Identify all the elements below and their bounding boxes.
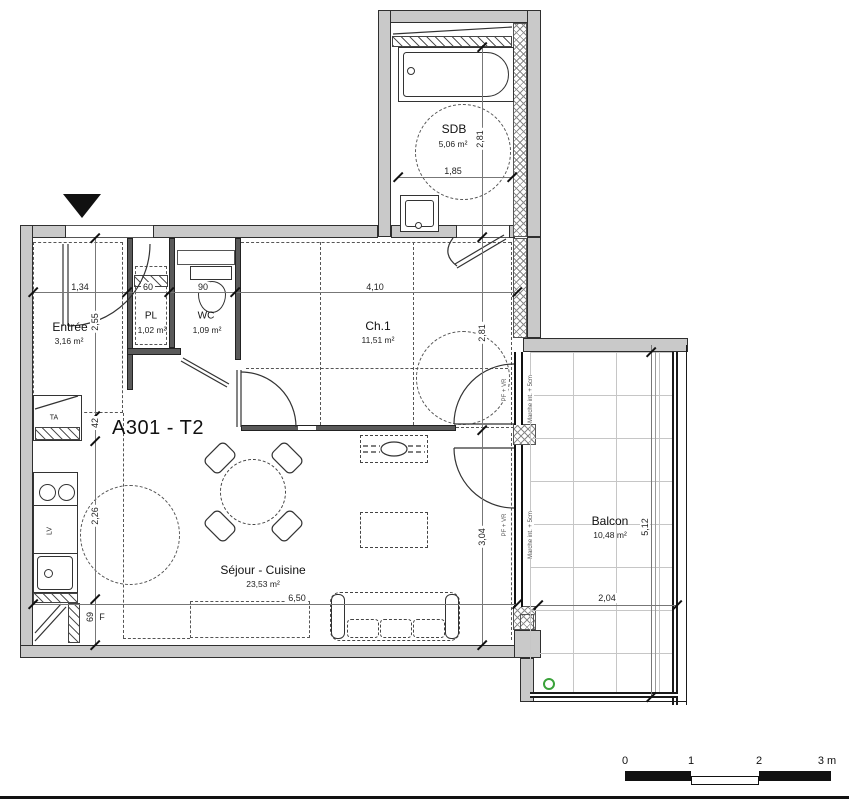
scale-segment-2 (691, 776, 759, 785)
wall-sdb-top (378, 10, 541, 23)
room-area-ch1: 11,51 m² (362, 335, 395, 345)
bathtub-inner (403, 52, 509, 97)
fridge-letter: F (97, 612, 107, 622)
cooktop-burner-left (39, 484, 56, 501)
ch1-door-arc (241, 372, 296, 427)
window-note-sejour: PF + VR (502, 514, 508, 537)
kitchen-zone-dashed-h (123, 638, 190, 639)
dim-entree-width: 1,34 (69, 282, 91, 292)
wall-gap (298, 426, 316, 430)
sheet-bottom-edge (0, 796, 849, 799)
dimension-line-h-top (33, 292, 517, 293)
dim-ch1-depth: 2,81 (477, 322, 487, 344)
room-label-sejour: Séjour - Cuisine (220, 563, 305, 577)
room-label-pl: PL (145, 311, 157, 322)
dim-sdb-width: 1,85 (442, 166, 464, 176)
dim-ch1-width: 4,10 (364, 282, 386, 292)
ch1-dashed-window (511, 242, 512, 425)
ch1-dashed-v1 (320, 242, 321, 425)
wall-balcony-top (523, 338, 688, 352)
scale-label-0: 0 (622, 755, 628, 767)
dim-wc-width: 90 (196, 282, 210, 292)
toilet-cistern (190, 266, 232, 280)
dimension-line-balcon-d (651, 345, 652, 697)
dim-balcon-depth: 5,12 (640, 516, 650, 538)
wall-right-upper (527, 237, 541, 338)
scale-label-1: 1 (688, 755, 694, 767)
cooktop-burner-right (58, 484, 75, 501)
wall-main-top-mid (153, 225, 378, 238)
dim-pl-width: 60 (141, 282, 155, 292)
bathtub-ledge-hatch (392, 36, 512, 47)
room-area-sdb: 5,06 m² (439, 139, 468, 149)
balcony-railing-bottom-outer (530, 701, 687, 702)
balcony-joint-line (655, 352, 656, 697)
dim-kitchen-depth: 2,26 (90, 505, 100, 527)
room-label-balcon: Balcon (592, 514, 629, 528)
balcony-railing-right (672, 352, 678, 705)
wall-wc-ch1 (235, 238, 241, 360)
wc-shelf (177, 250, 235, 265)
sofa-cushion-1 (347, 619, 379, 638)
entrance-arrow (63, 194, 101, 218)
dimension-line-sdb-w (398, 177, 512, 178)
counter-divider-1 (33, 505, 78, 506)
fridge-zone-dashed (190, 601, 310, 638)
balcony-railing-right-outer (686, 345, 687, 705)
ta-label: TA (50, 415, 58, 422)
sdb-door-leaf (455, 235, 506, 268)
scale-label-2: 2 (756, 755, 762, 767)
ch1-door-leaf (237, 370, 241, 427)
dim-sejour-width: 6,50 (286, 593, 308, 603)
dimension-line-balcon-w (538, 605, 677, 606)
sofa-cushion-3 (413, 619, 445, 638)
room-label-wc: WC (198, 311, 215, 322)
dim-ta-depth: 42 (90, 416, 100, 430)
wall-sdb-left (378, 10, 391, 237)
dim-sdb-depth: 2,81 (475, 128, 485, 150)
turning-circle-sdb (415, 104, 511, 200)
room-label-sdb: SDB (442, 122, 467, 136)
dining-table (220, 459, 286, 525)
wall-main-bottom (20, 645, 541, 658)
insulation-sdb-right (513, 23, 527, 237)
dim-balcon-width: 2,04 (596, 593, 618, 603)
sofa-armrest-right (445, 594, 459, 639)
lv-label: LV (47, 527, 54, 535)
dim-fridge-depth: 69 (85, 610, 95, 624)
window-ch1 (514, 352, 523, 425)
drain-marker (543, 678, 555, 690)
entry-door-opening (66, 225, 153, 238)
room-area-pl: 1,02 m² (138, 325, 167, 335)
step-note-lower: Marche int. + 5cm (528, 511, 534, 559)
room-area-wc: 1,09 m² (193, 325, 222, 335)
step-note-upper: Marche int. + 5cm (528, 375, 534, 423)
fridge-side-hatch (68, 603, 80, 643)
wall-ch1-sejour (241, 425, 456, 431)
window-note-ch1: PF + VR (502, 379, 508, 402)
dimension-line-sejour-w (33, 604, 517, 605)
room-area-sejour: 23,53 m² (246, 579, 280, 589)
sink-drain (44, 569, 53, 578)
sofa-cushion-2 (380, 619, 412, 638)
counter-divider-2 (33, 553, 78, 554)
floor-plan: A301 - T2 SDB 5,06 m² Entrée 3,16 m² PL … (0, 0, 849, 800)
room-label-entree: Entrée (52, 320, 87, 334)
fridge-door-diagonal (35, 604, 66, 641)
scale-segment-1 (625, 771, 691, 781)
coffee-table (360, 512, 428, 548)
scale-label-3m: 3 m (818, 755, 836, 767)
kitchen-sink (37, 556, 73, 590)
counter-end-hatch (33, 593, 78, 603)
ch1-dashed-v2 (413, 242, 414, 425)
turning-circle-ch1 (416, 331, 510, 425)
bathtub-ledge-slope (393, 27, 512, 34)
wall-main-left (20, 225, 33, 658)
sejour-window-arc (454, 448, 514, 508)
room-label-ch1: Ch.1 (365, 319, 390, 333)
scale-segment-3 (759, 771, 831, 781)
wall-pl-wc (169, 238, 175, 348)
tv-unit (360, 435, 428, 463)
dim-entree-depth: 2,55 (90, 311, 100, 333)
wc-door-leaf (181, 358, 229, 387)
wall-entree-pl (127, 238, 133, 390)
room-area-entree: 3,16 m² (55, 336, 84, 346)
dim-sejour-depth: 3,04 (477, 526, 487, 548)
ch1-dashed-top (241, 242, 511, 243)
bathtub-drain (407, 67, 415, 75)
wall-pl-bottom (127, 348, 181, 355)
wall-sdb-right (527, 10, 541, 237)
sofa-armrest-left (331, 594, 345, 639)
window-sejour (514, 445, 523, 607)
washbasin-faucet (415, 222, 422, 229)
room-area-balcon: 10,48 m² (593, 530, 627, 540)
ta-closet-hatch (35, 427, 80, 440)
apartment-title: A301 - T2 (112, 417, 204, 440)
